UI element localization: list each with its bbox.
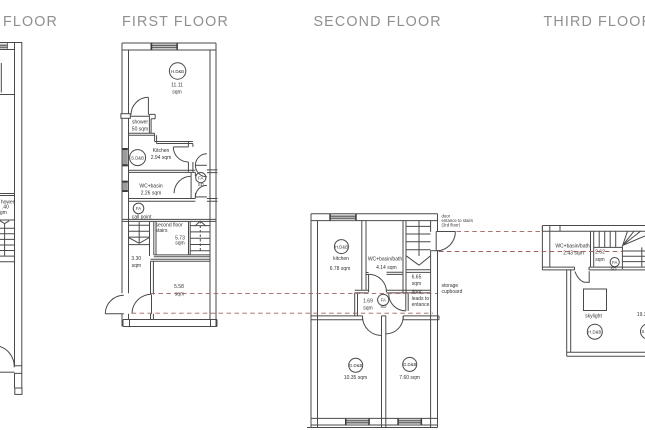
svg-text:2.94 sqm: 2.94 sqm xyxy=(151,155,172,161)
svg-text:6.65: 6.65 xyxy=(412,275,422,281)
svg-text:SD: SD xyxy=(198,182,204,187)
svg-text:2.62: 2.62 xyxy=(595,249,605,255)
svg-text:G.D&B: G.D&B xyxy=(349,363,363,368)
svg-text:11.11: 11.11 xyxy=(171,83,183,89)
svg-text:gm: gm xyxy=(0,210,7,216)
svg-text:6.78 sqm: 6.78 sqm xyxy=(330,266,351,272)
svg-text:cupboard: cupboard xyxy=(442,289,463,295)
svg-text:sqm: sqm xyxy=(363,306,372,312)
svg-text:sqm: sqm xyxy=(595,257,604,263)
svg-text:H.D&B: H.D&B xyxy=(588,329,601,334)
svg-text:SECOND FLOOR: SECOND FLOOR xyxy=(314,14,442,30)
svg-text:G.D&B: G.D&B xyxy=(403,362,417,367)
svg-text:H.D&B: H.D&B xyxy=(171,69,184,74)
svg-text:kitchen: kitchen xyxy=(333,256,349,262)
svg-text:FA: FA xyxy=(198,175,203,180)
svg-text:Kitchen: Kitchen xyxy=(153,148,170,154)
svg-text:shower: shower xyxy=(132,120,148,126)
svg-text:S.D&B: S.D&B xyxy=(131,155,144,160)
svg-text:1.69: 1.69 xyxy=(363,299,373,305)
svg-text:FA: FA xyxy=(612,260,617,265)
svg-text:skylight: skylight xyxy=(585,313,602,319)
svg-text:50 sqm: 50 sqm xyxy=(132,127,148,133)
svg-text:2.26 sqm: 2.26 sqm xyxy=(141,191,162,197)
svg-text:sqm: sqm xyxy=(132,263,141,269)
svg-text:sqm: sqm xyxy=(175,241,184,247)
svg-text:FA: FA xyxy=(136,206,141,211)
svg-text:sqm: sqm xyxy=(172,90,181,96)
svg-text:THIRD FLOOR: THIRD FLOOR xyxy=(544,14,645,30)
svg-text:entance: entance xyxy=(412,302,430,308)
svg-text:S.D&B: S.D&B xyxy=(642,329,645,334)
svg-text:FA: FA xyxy=(381,298,386,303)
svg-text:(3rd floor): (3rd floor) xyxy=(442,223,461,228)
svg-text:H.D&B: H.D&B xyxy=(335,244,348,249)
svg-text:5.58: 5.58 xyxy=(174,284,184,290)
svg-text:stairs: stairs xyxy=(156,228,168,234)
svg-text:sqm: sqm xyxy=(412,281,421,287)
svg-text:10.35 sqm: 10.35 sqm xyxy=(344,375,367,381)
svg-text:19.35 sqm: 19.35 sqm xyxy=(637,312,645,318)
svg-text:sqm: sqm xyxy=(175,292,184,298)
svg-text:WC+basin: WC+basin xyxy=(139,184,162,190)
svg-text:SD: SD xyxy=(381,304,387,309)
svg-text:FLOOR: FLOOR xyxy=(3,14,58,30)
svg-text:7.60 sqm: 7.60 sqm xyxy=(399,375,420,381)
svg-text:3.30: 3.30 xyxy=(131,256,141,262)
svg-text:4.14 sqm: 4.14 sqm xyxy=(376,265,397,271)
svg-text:WC+basin/bath: WC+basin/bath xyxy=(555,243,590,249)
svg-text:SD: SD xyxy=(611,266,617,271)
svg-text:door: door xyxy=(412,290,422,296)
svg-text:FIRST FLOOR: FIRST FLOOR xyxy=(122,14,229,30)
svg-text:call point: call point xyxy=(132,214,152,220)
svg-text:WC+basin/bath: WC+basin/bath xyxy=(368,256,403,262)
